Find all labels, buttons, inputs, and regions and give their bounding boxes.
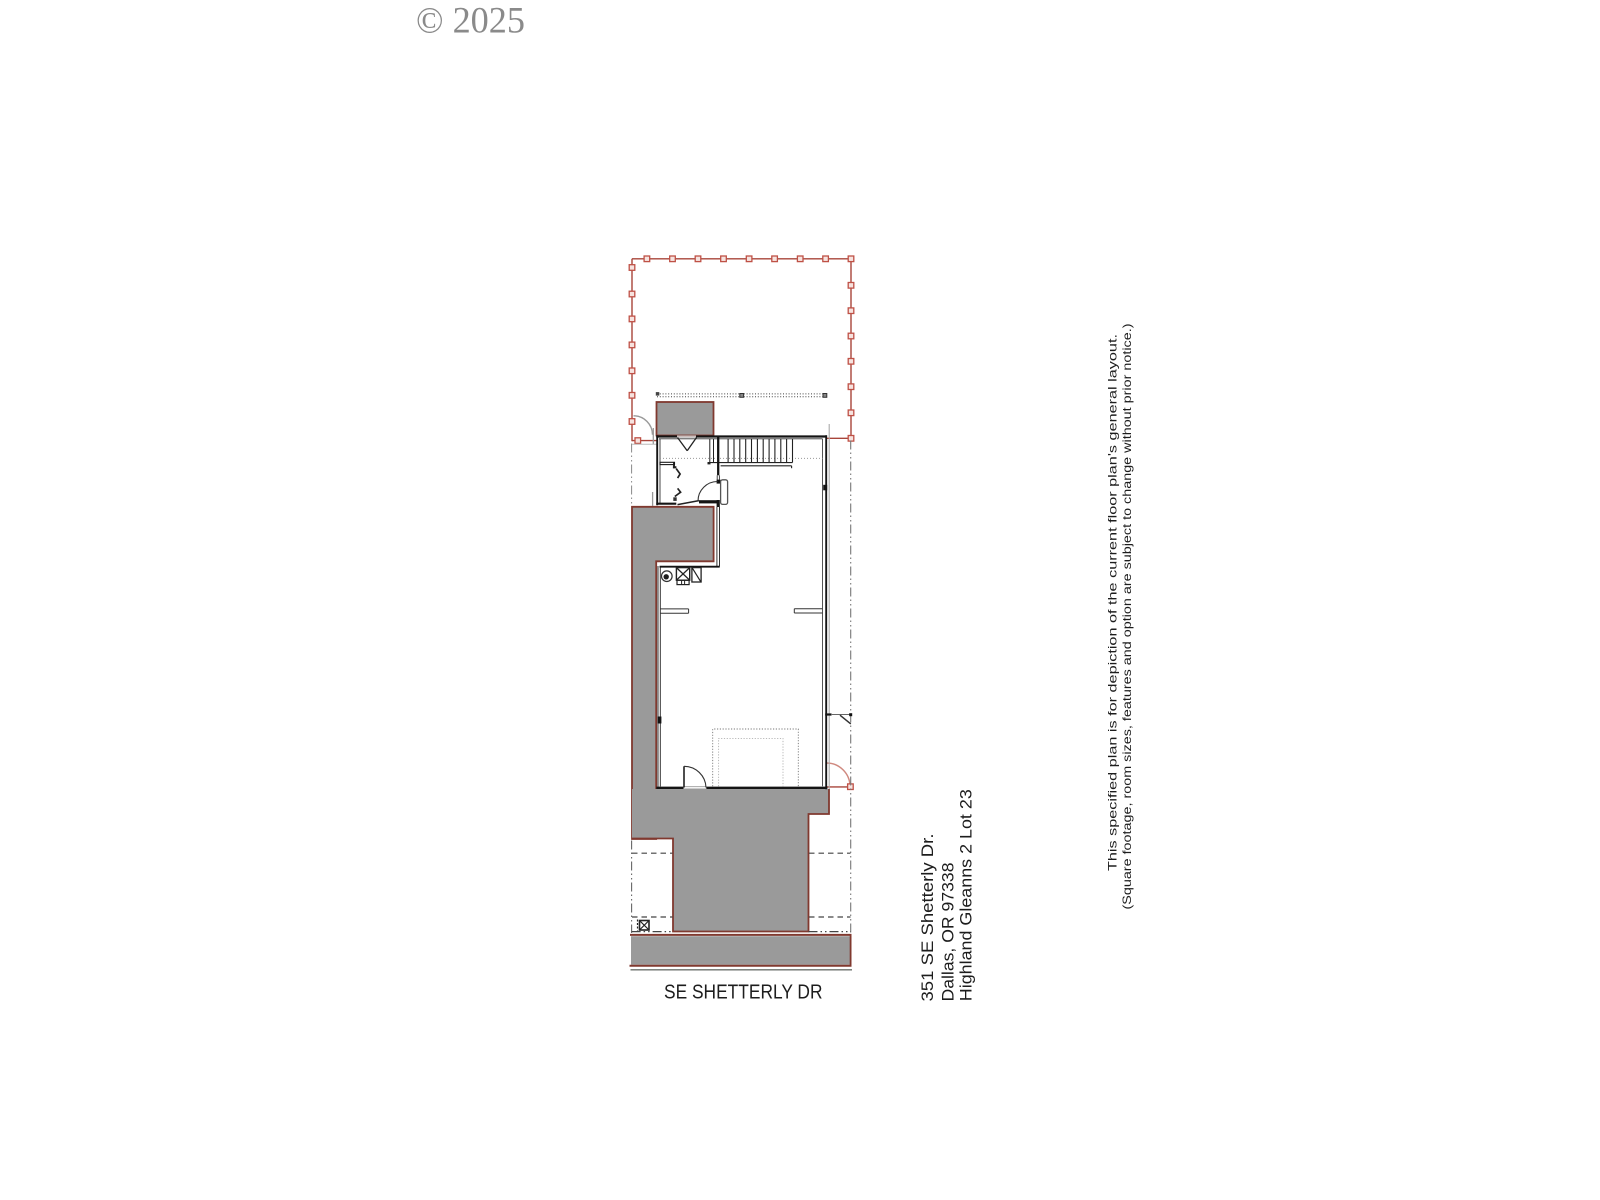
svg-text:Dallas, OR 97338: Dallas, OR 97338 (939, 863, 958, 1002)
svg-text:This specified plan is for dep: This specified plan is for depiction of … (1105, 334, 1119, 871)
svg-text:Highland Gleanns 2 Lot 23: Highland Gleanns 2 Lot 23 (957, 789, 975, 1001)
svg-text:(Square footage, room sizes, f: (Square footage, room sizes, features an… (1120, 324, 1134, 910)
svg-text:351 SE Shetterly Dr.: 351 SE Shetterly Dr. (918, 834, 937, 1002)
svg-text:© 2025: © 2025 (416, 1, 525, 42)
svg-text:SE SHETTERLY DR: SE SHETTERLY DR (664, 982, 823, 1004)
